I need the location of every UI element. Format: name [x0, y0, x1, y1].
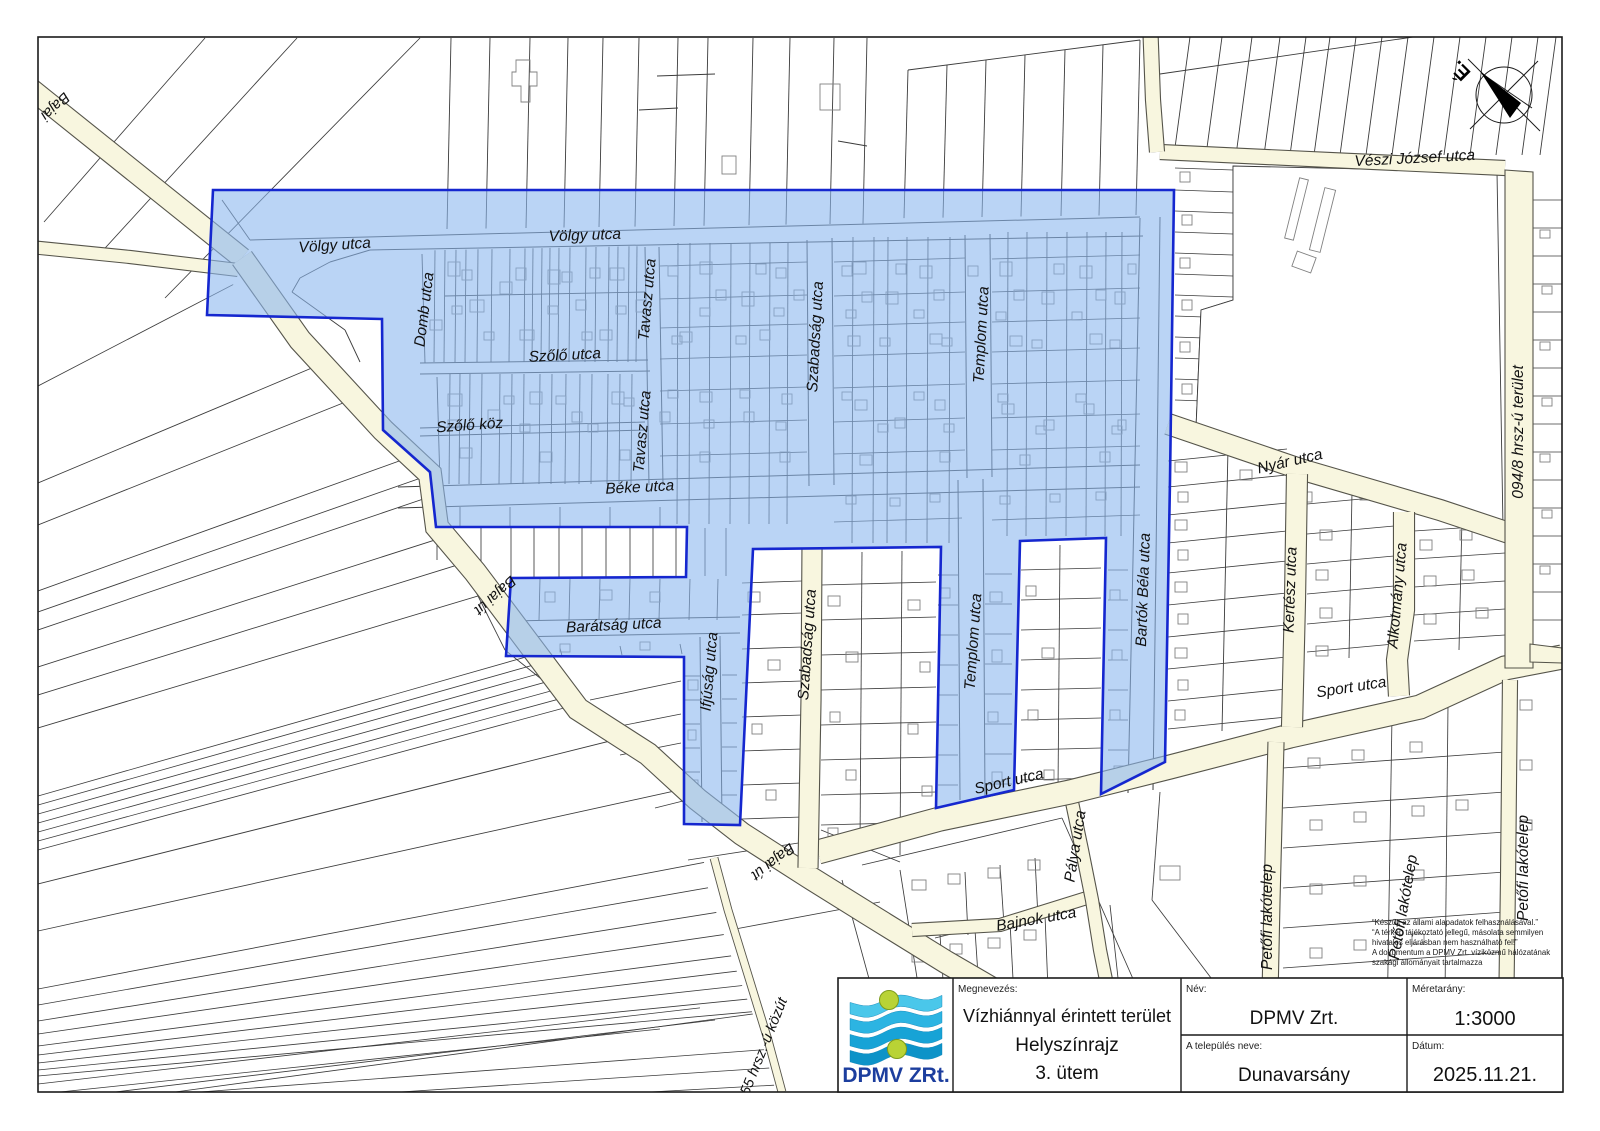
- svg-text:DPMV ZRt.: DPMV ZRt.: [842, 1064, 949, 1087]
- svg-text:Petőfi lakótelep: Petőfi lakótelep: [1515, 815, 1532, 921]
- svg-text:Dunavarsány: Dunavarsány: [1238, 1065, 1350, 1086]
- svg-text:2025.11.21.: 2025.11.21.: [1433, 1064, 1537, 1086]
- svg-text:“Készült az állami alapadatok: “Készült az állami alapadatok felhasznál…: [1372, 918, 1538, 927]
- svg-text:3. ütem: 3. ütem: [1035, 1063, 1098, 1084]
- svg-text:Méretarány:: Méretarány:: [1412, 984, 1465, 995]
- svg-text:Béke utca: Béke utca: [605, 477, 675, 498]
- svg-text:hivatalos eljárásban nem haszn: hivatalos eljárásban nem használható fel…: [1372, 938, 1518, 947]
- svg-text:Dátum:: Dátum:: [1412, 1041, 1444, 1052]
- svg-text:A dokumentum a DPMV Zrt. vízik: A dokumentum a DPMV Zrt. víziközmű hálóz…: [1372, 948, 1550, 957]
- svg-text:094/8 hrsz-ú terület: 094/8 hrsz-ú terület: [1510, 365, 1527, 499]
- svg-text:Kertész utca: Kertész utca: [1281, 546, 1301, 633]
- svg-text:“A térkép tájékoztató jellegű,: “A térkép tájékoztató jellegű, másolata …: [1372, 928, 1543, 937]
- svg-text:Megnevezés:: Megnevezés:: [958, 984, 1017, 995]
- svg-text:A település neve:: A település neve:: [1186, 1041, 1262, 1052]
- svg-text:Név:: Név:: [1186, 984, 1207, 995]
- svg-text:1:3000: 1:3000: [1454, 1008, 1515, 1030]
- svg-text:Vízhiánnyal érintett terület: Vízhiánnyal érintett terület: [963, 1006, 1171, 1026]
- svg-text:Helyszínrajz: Helyszínrajz: [1015, 1035, 1118, 1056]
- svg-text:szakági állományait tartalmazz: szakági állományait tartalmazza: [1372, 958, 1483, 967]
- svg-text:Völgy utca: Völgy utca: [548, 226, 621, 246]
- svg-text:DPMV Zrt.: DPMV Zrt.: [1250, 1008, 1339, 1029]
- svg-text:Petőfi lakótelep: Petőfi lakótelep: [1259, 864, 1276, 970]
